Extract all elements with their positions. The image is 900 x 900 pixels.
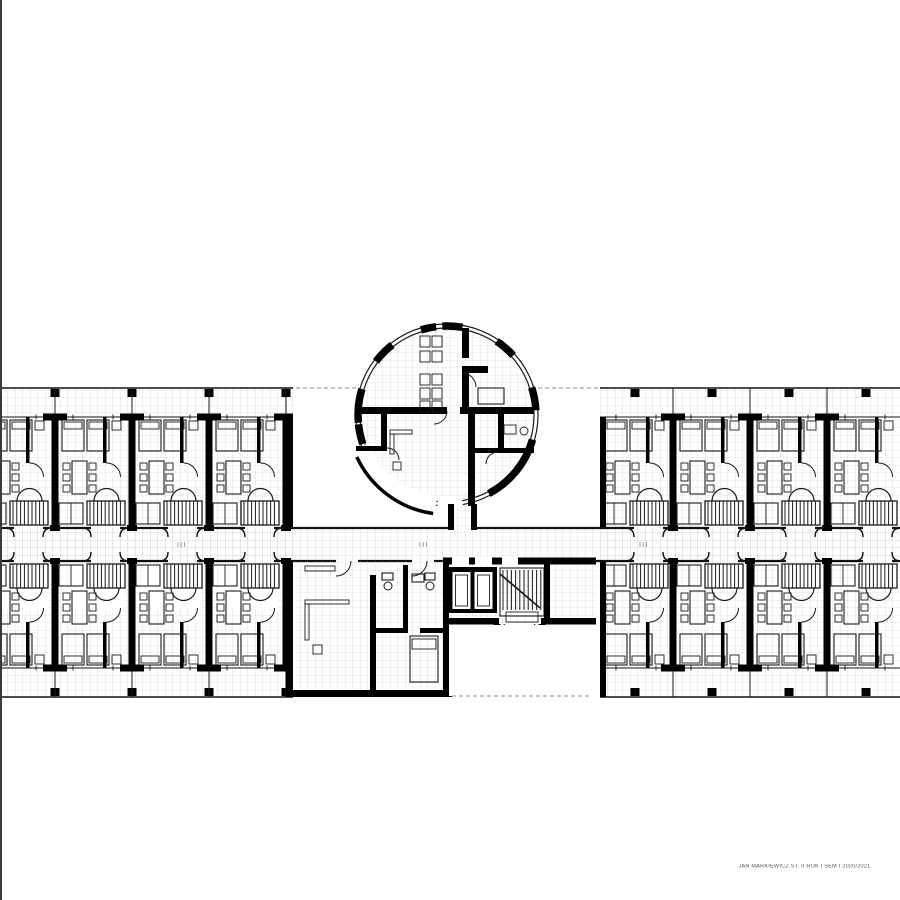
floor-plan-drawing: [0, 0, 900, 900]
circular-pavilion: [356, 324, 538, 530]
central-core: [443, 558, 596, 698]
common-rooms: [292, 561, 452, 697]
drawing-sheet: JAN MARKIEWICZ ST. II ROK I SEM I 2020/2…: [0, 0, 900, 900]
title-block-text: JAN MARKIEWICZ ST. II ROK I SEM I 2020/2…: [738, 864, 870, 870]
sheet-edge-line: [0, 0, 2, 900]
elevator-shafts: [449, 567, 497, 613]
